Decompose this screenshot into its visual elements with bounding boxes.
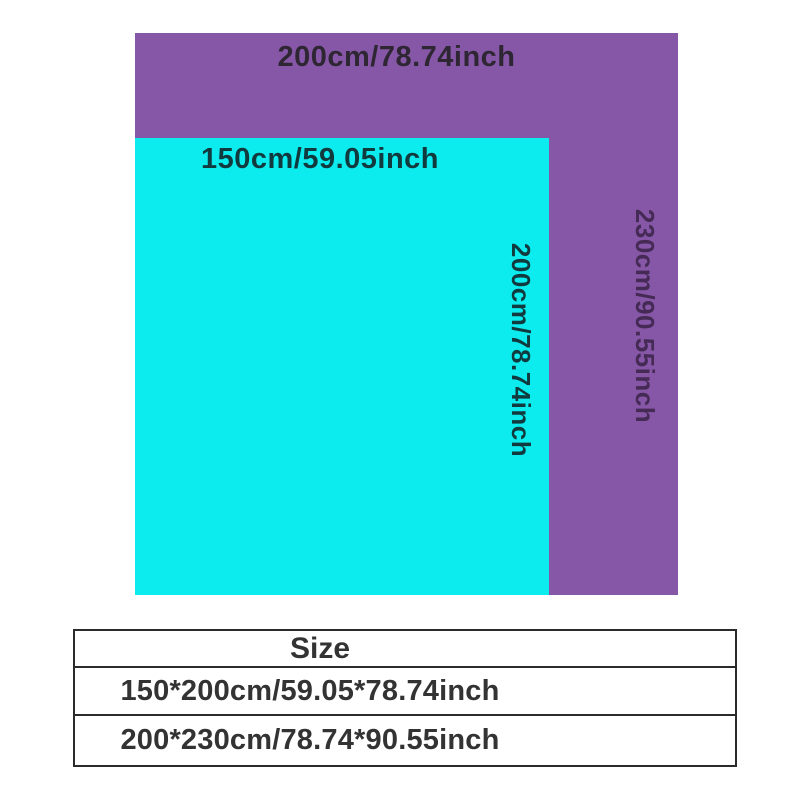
size-table-header: Size (75, 631, 735, 668)
page: { "page": { "background": "#ffffff" }, "… (0, 0, 800, 800)
size-chart-image: 200cm/78.74inch 150cm/59.05inch 200cm/78… (0, 0, 800, 800)
large-rect-height-label: 230cm/90.55inch (632, 209, 658, 423)
small-rect-width-label: 150cm/59.05inch (135, 138, 549, 176)
small-size-rect: 150cm/59.05inch (135, 138, 549, 595)
size-table-row: 150*200cm/59.05*78.74inch (75, 668, 735, 716)
small-rect-height-label: 200cm/78.74inch (508, 243, 534, 457)
size-table-row: 200*230cm/78.74*90.55inch (75, 716, 735, 765)
large-rect-width-label: 200cm/78.74inch (135, 33, 678, 74)
size-table: Size 150*200cm/59.05*78.74inch 200*230cm… (73, 629, 737, 767)
